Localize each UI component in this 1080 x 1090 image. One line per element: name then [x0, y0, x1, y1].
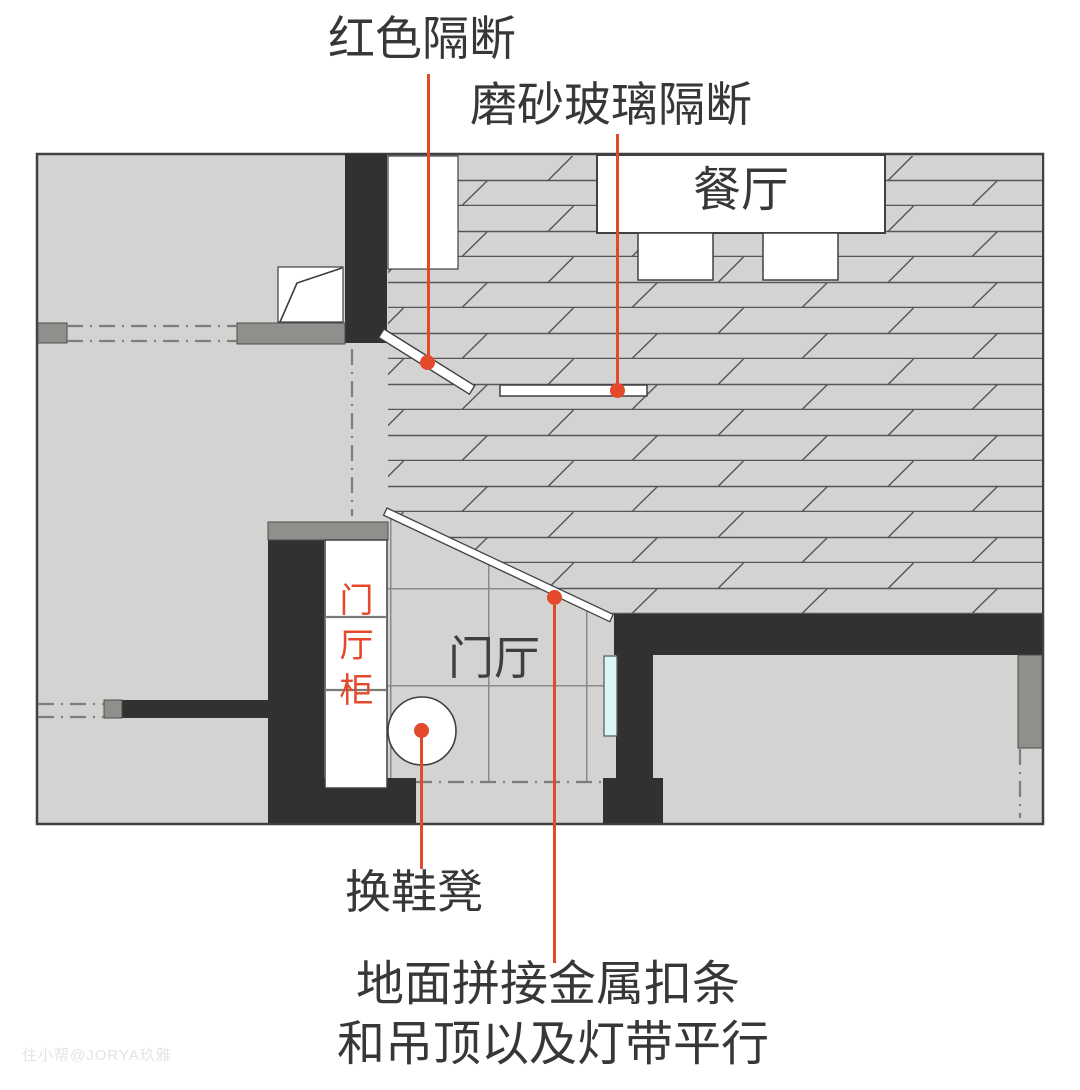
door-swing-area — [278, 267, 343, 322]
leader-line-red-partition — [427, 74, 430, 362]
label-entry-hall: 门厅 — [448, 634, 540, 682]
wall-segment-door — [237, 323, 345, 344]
dining-chair — [638, 233, 713, 280]
label-metal-strip-line1: 地面拼接金属扣条 — [356, 960, 740, 1010]
label-hall-cabinet: 门厅柜 — [329, 582, 378, 717]
leader-dot-shoe-stool — [414, 723, 429, 738]
wall-top-column — [345, 154, 387, 343]
label-red-partition: 红色隔断 — [328, 14, 516, 63]
floor-plan-drawing — [0, 0, 1080, 1090]
dining-chair — [763, 233, 838, 280]
leader-dot-frosted-glass — [610, 383, 625, 398]
leader-line-metal-strip — [553, 600, 556, 963]
wall-stub-left — [38, 323, 67, 343]
wall-bottom-room-top — [614, 614, 1042, 655]
leader-dot-red-partition — [420, 355, 435, 370]
wall-lower-left — [120, 700, 268, 718]
wall-entry-right-bottom — [603, 778, 663, 823]
label-shoe-stool: 换鞋凳 — [345, 868, 483, 916]
watermark: 住小帮@JORYA玖雅 — [22, 1044, 172, 1065]
entry-opening — [388, 156, 458, 269]
window-right — [1018, 655, 1042, 748]
wall-cap-left — [104, 700, 122, 718]
label-metal-strip-line2: 和吊顶以及灯带平行 — [337, 1020, 769, 1070]
leader-dot-metal-strip — [547, 590, 562, 605]
label-frosted-glass-partition: 磨砂玻璃隔断 — [470, 80, 752, 129]
leader-line-shoe-stool — [420, 733, 423, 869]
cabinet-top-wall — [268, 522, 388, 540]
floor-plan-page: 红色隔断 磨砂玻璃隔断 餐厅 门厅 门厅柜 换鞋凳 地面拼接金属扣条 和吊顶以及… — [0, 0, 1080, 1090]
label-dining-room: 餐厅 — [597, 166, 885, 216]
entry-door-glass — [604, 656, 617, 736]
